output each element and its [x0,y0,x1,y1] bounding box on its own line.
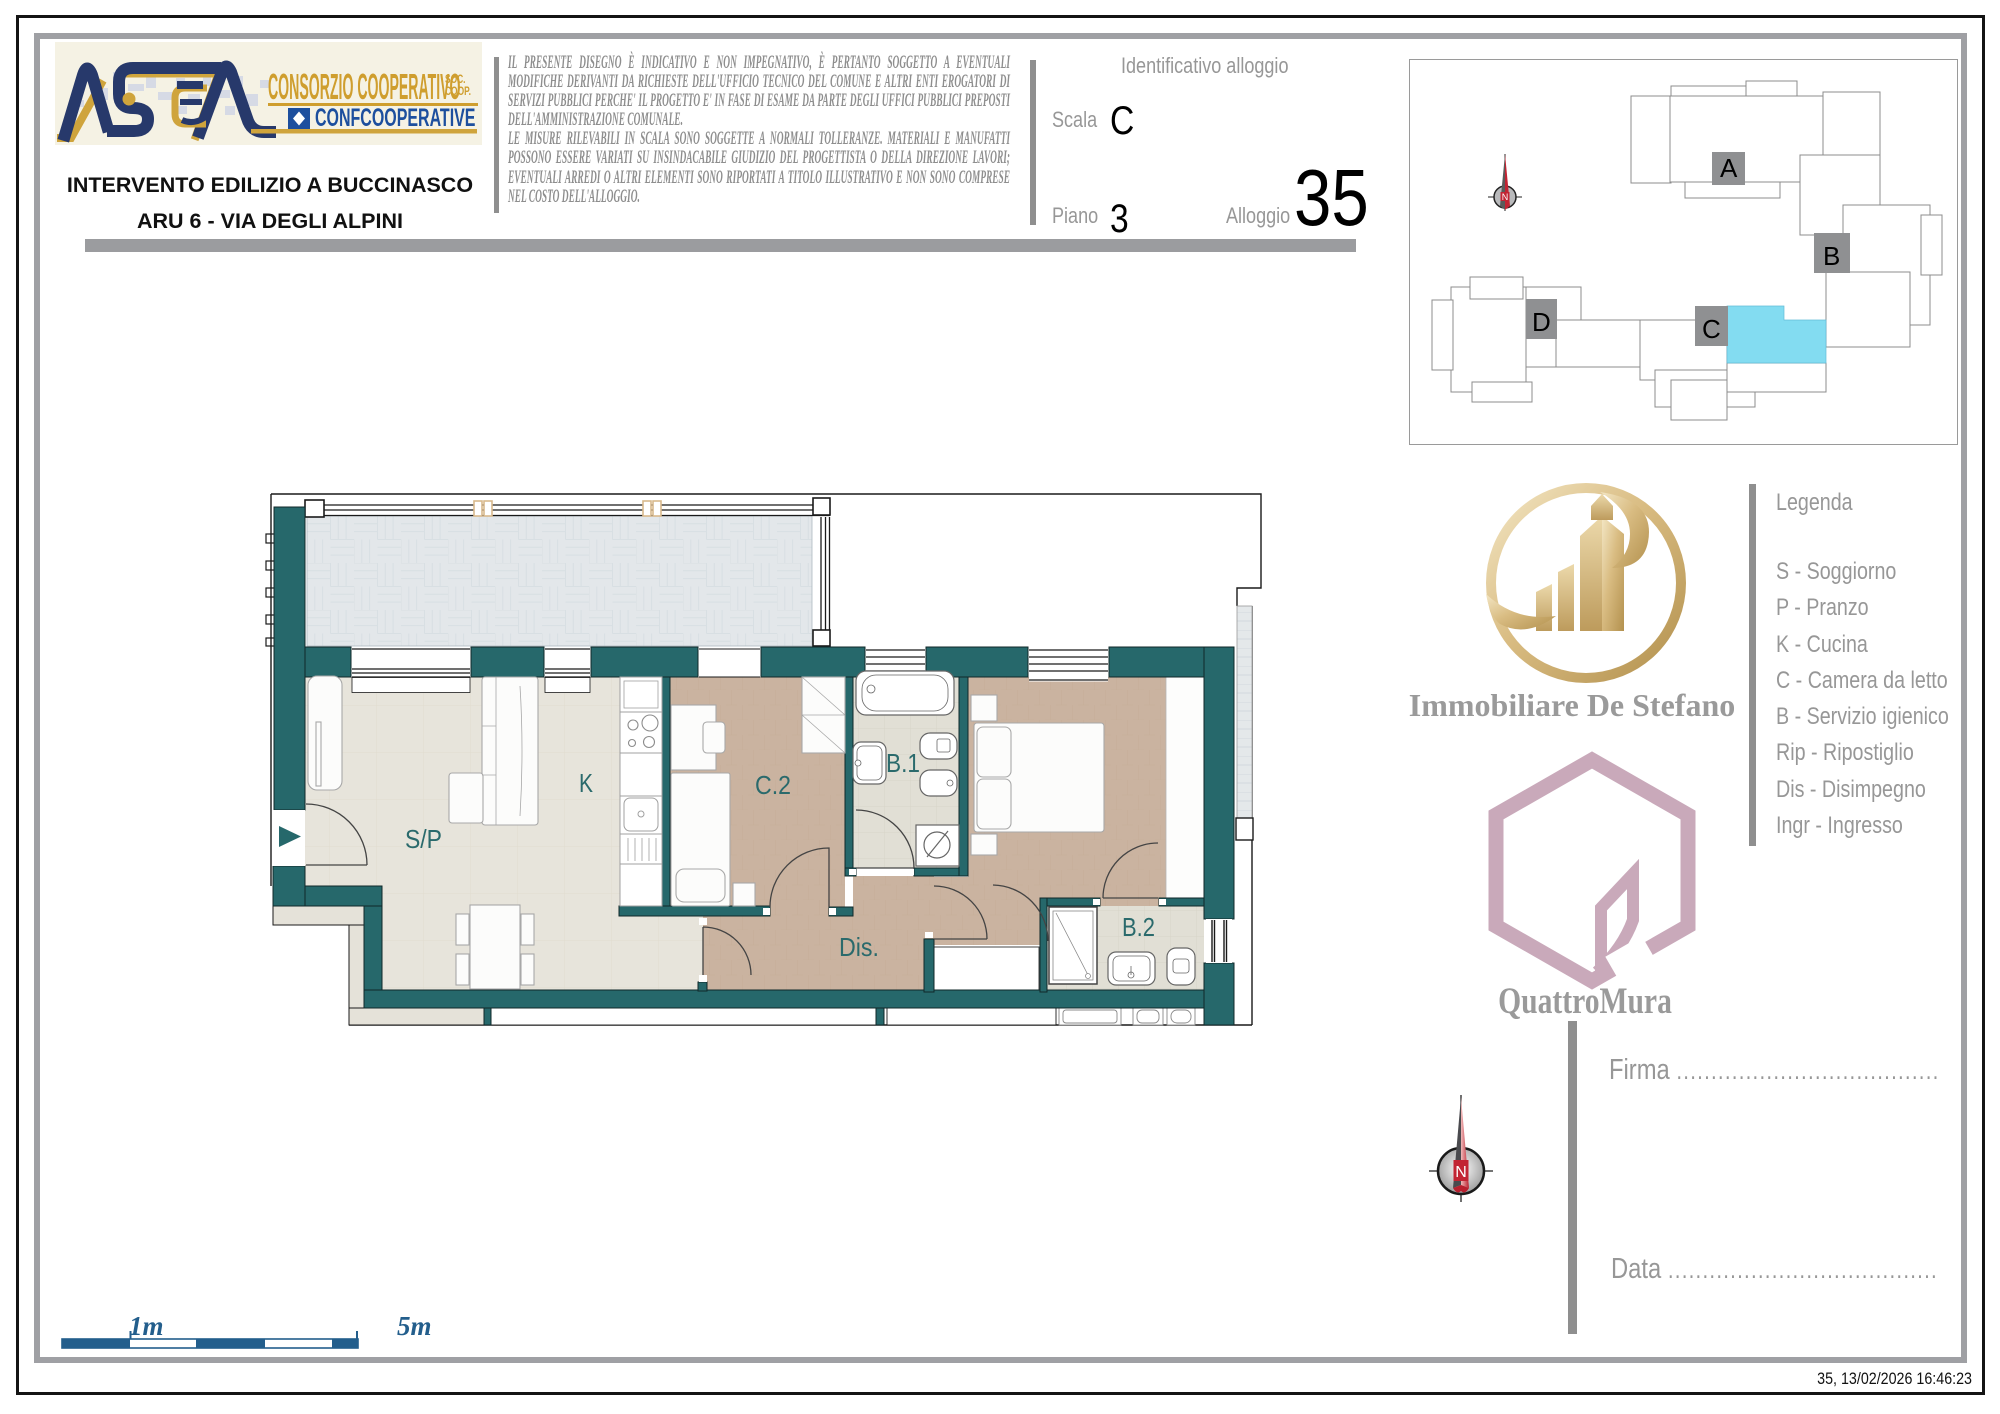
svg-text:B: B [1823,241,1840,271]
svg-text:COOP.: COOP. [445,86,471,99]
svg-text:B.1: B.1 [886,748,920,778]
svg-text:N: N [1455,1164,1467,1181]
svg-text:5m: 5m [397,1311,432,1341]
svg-text:1m: 1m [129,1311,164,1341]
svg-text:CONSORZIO COOPERATIVO: CONSORZIO COOPERATIVO [268,66,461,107]
svg-text:B.2: B.2 [1122,912,1155,942]
svg-text:S/P: S/P [405,824,442,854]
svg-text:A: A [1720,153,1738,183]
svg-text:Dis.: Dis. [839,932,879,962]
svg-text:D: D [1532,307,1551,337]
svg-text:CONFCOOPERATIVE: CONFCOOPERATIVE [315,105,475,132]
svg-text:SOC.: SOC. [445,74,466,87]
svg-text:C.2: C.2 [755,770,791,800]
svg-text:C: C [1702,314,1721,344]
svg-text:K: K [579,768,594,798]
svg-text:N: N [1502,192,1509,202]
